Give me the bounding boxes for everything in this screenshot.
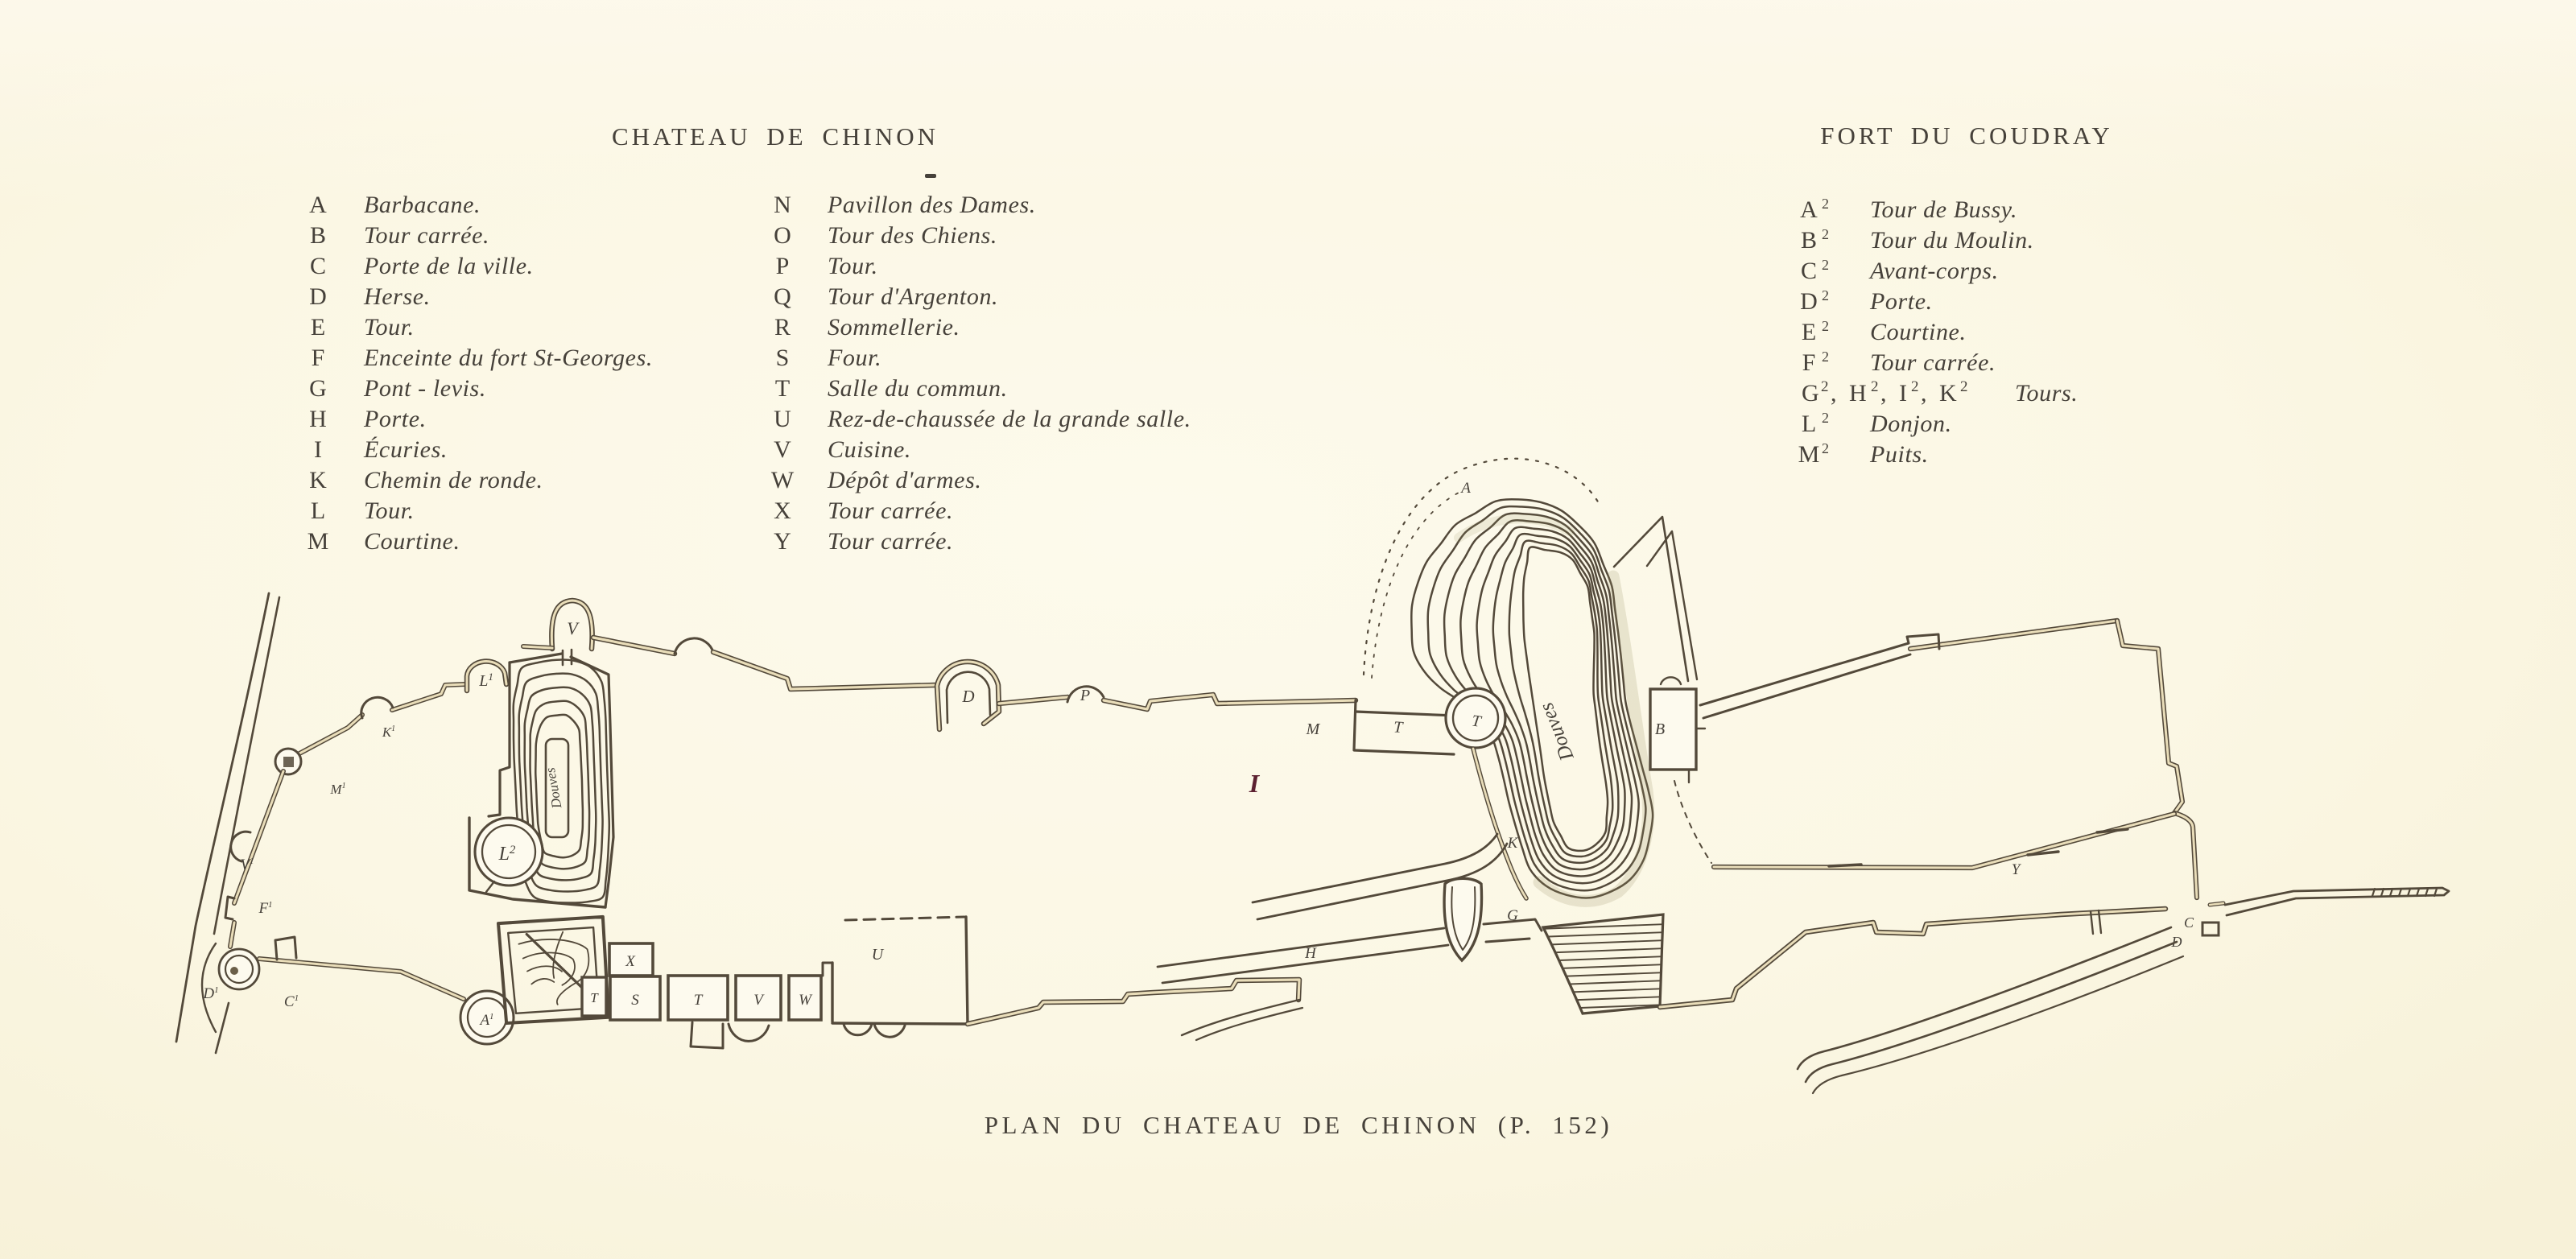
svg-text:2: 2 <box>1821 378 1829 395</box>
svg-text:Y: Y <box>774 528 791 555</box>
svg-text:S: S <box>631 992 639 1009</box>
svg-text:L: L <box>1802 411 1816 437</box>
svg-text:Salle du commun.: Salle du commun. <box>828 375 1008 402</box>
svg-text:Pavillon des Dames.: Pavillon des Dames. <box>827 192 1036 218</box>
svg-text:M: M <box>1798 441 1820 468</box>
svg-text:O: O <box>774 222 791 249</box>
svg-text:K: K <box>1939 380 1957 407</box>
svg-text:H: H <box>1304 945 1317 962</box>
svg-text:U: U <box>872 946 885 964</box>
svg-text:2: 2 <box>1822 440 1829 456</box>
svg-text:Avant-corps.: Avant-corps. <box>1868 258 1999 284</box>
svg-text:2: 2 <box>1822 349 1829 365</box>
svg-text:Courtine.: Courtine. <box>1870 319 1967 345</box>
svg-text:PLAN DU CHATEAU DE CHINON (P.: PLAN DU CHATEAU DE CHINON (P. 152) <box>985 1111 1612 1139</box>
svg-text:L: L <box>311 497 325 524</box>
svg-text:2: 2 <box>1822 226 1829 242</box>
svg-text:K: K <box>1507 835 1519 852</box>
svg-text:Rez-de-chaussée de la grande s: Rez-de-chaussée de la grande salle. <box>827 406 1191 432</box>
svg-text:,: , <box>1831 380 1837 407</box>
svg-text:Tour carrée.: Tour carrée. <box>828 528 953 555</box>
svg-text:CHATEAU DE CHINON: CHATEAU DE CHINON <box>612 122 939 151</box>
svg-text:E: E <box>311 314 325 341</box>
svg-text:M: M <box>308 528 329 555</box>
svg-text:Q: Q <box>774 283 791 310</box>
svg-text:G: G <box>309 375 327 402</box>
svg-text:N: N <box>774 192 791 218</box>
svg-text:,: , <box>1880 380 1887 407</box>
svg-text:Courtine.: Courtine. <box>364 528 460 555</box>
svg-text:,: , <box>1921 380 1927 407</box>
svg-text:Enceinte du fort St-Georges.: Enceinte du fort St-Georges. <box>363 345 653 371</box>
svg-text:R: R <box>774 314 791 341</box>
svg-text:Tour.: Tour. <box>364 314 415 341</box>
svg-text:2: 2 <box>1822 318 1829 334</box>
svg-text:Tour carrée.: Tour carrée. <box>828 497 953 524</box>
svg-text:B: B <box>1655 720 1665 738</box>
svg-text:Donjon.: Donjon. <box>1869 411 1952 437</box>
svg-text:H: H <box>309 406 327 432</box>
svg-text:2: 2 <box>1911 378 1919 395</box>
svg-text:Chemin de ronde.: Chemin de ronde. <box>364 467 543 493</box>
svg-text:Tour.: Tour. <box>828 253 878 279</box>
svg-text:W: W <box>799 992 813 1009</box>
svg-text:T: T <box>590 990 599 1005</box>
svg-text:Tour carrée.: Tour carrée. <box>364 222 489 249</box>
svg-text:Herse.: Herse. <box>363 283 431 310</box>
svg-text:D: D <box>309 283 327 310</box>
svg-text:A: A <box>1459 480 1471 497</box>
svg-text:I: I <box>1899 380 1907 407</box>
svg-text:FORT DU COUDRAY: FORT DU COUDRAY <box>1820 122 2113 150</box>
svg-text:Four.: Four. <box>827 345 881 371</box>
svg-text:C: C <box>2184 914 2194 931</box>
svg-text:2: 2 <box>1960 378 1968 395</box>
svg-text:B: B <box>1801 227 1817 254</box>
svg-text:T: T <box>775 375 790 402</box>
svg-text:Pont - levis.: Pont - levis. <box>363 375 486 402</box>
svg-text:F: F <box>312 345 325 371</box>
svg-text:2: 2 <box>1871 378 1879 395</box>
svg-text:Cuisine.: Cuisine. <box>828 436 911 463</box>
svg-text:Dépôt d'armes.: Dépôt d'armes. <box>827 467 981 493</box>
svg-text:X: X <box>774 497 791 524</box>
svg-text:D: D <box>961 687 974 706</box>
svg-text:Tour des Chiens.: Tour des Chiens. <box>828 222 997 249</box>
svg-text:V: V <box>774 436 791 463</box>
svg-text:C: C <box>310 253 326 279</box>
svg-text:Sommellerie.: Sommellerie. <box>828 314 960 341</box>
svg-text:D: D <box>1800 288 1818 315</box>
svg-text:2: 2 <box>1822 196 1829 212</box>
svg-text:P: P <box>776 253 790 279</box>
svg-text:A: A <box>1800 196 1818 223</box>
svg-text:Tour carrée.: Tour carrée. <box>1870 349 1996 376</box>
svg-text:T: T <box>694 992 704 1009</box>
svg-text:A: A <box>309 192 327 218</box>
svg-text:S: S <box>776 345 790 371</box>
svg-text:Tour de Bussy.: Tour de Bussy. <box>1870 196 2017 223</box>
svg-text:E: E <box>1802 319 1816 345</box>
svg-text:Tours.: Tours. <box>2015 380 2078 407</box>
svg-text:Barbacane.: Barbacane. <box>364 192 481 218</box>
svg-text:M: M <box>1306 720 1321 738</box>
svg-text:Puits.: Puits. <box>1869 441 1929 468</box>
svg-text:H: H <box>1849 380 1867 407</box>
svg-text:Tour d'Argenton.: Tour d'Argenton. <box>828 283 998 310</box>
svg-text:I: I <box>314 436 322 463</box>
svg-text:I: I <box>1249 769 1261 798</box>
svg-text:Porte.: Porte. <box>363 406 427 432</box>
svg-text:Tour.: Tour. <box>364 497 415 524</box>
svg-text:2: 2 <box>1822 287 1829 303</box>
svg-text:C: C <box>1801 258 1817 284</box>
svg-text:X: X <box>625 953 636 970</box>
svg-text:U: U <box>774 406 791 432</box>
svg-text:2: 2 <box>1822 410 1829 426</box>
svg-text:K: K <box>309 467 327 493</box>
svg-text:G: G <box>1802 380 1819 407</box>
svg-text:Porte.: Porte. <box>1869 288 1933 315</box>
svg-text:P: P <box>1080 687 1090 704</box>
svg-text:2: 2 <box>1822 257 1829 273</box>
svg-text:F: F <box>1802 349 1816 376</box>
svg-text:B: B <box>310 222 326 249</box>
svg-text:Écuries.: Écuries. <box>363 436 448 463</box>
svg-text:Porte de la ville.: Porte de la ville. <box>363 253 534 279</box>
svg-text:Tour du Moulin.: Tour du Moulin. <box>1870 227 2034 254</box>
svg-text:W: W <box>771 467 795 493</box>
